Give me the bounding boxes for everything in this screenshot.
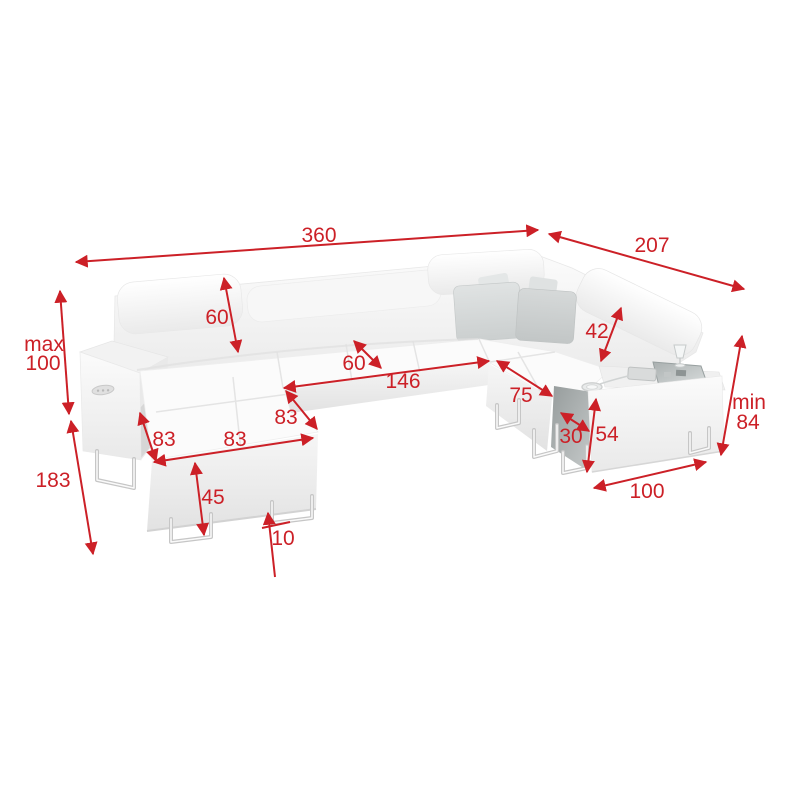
- pillow-right: [515, 288, 576, 344]
- dim-total-depth-label: 207: [634, 234, 669, 257]
- dim-base-front-height-label: 45: [201, 486, 224, 509]
- dim-headrest-height-label: 42: [585, 320, 608, 343]
- sofa-dimensions-diagram: 360 207 max 100 183 60 60 146: [0, 0, 800, 800]
- dim-height-min: min 84: [721, 336, 766, 455]
- dim-right-module-width-label: 100: [629, 480, 664, 503]
- dim-seat-depth-label: 60: [342, 352, 365, 375]
- dim-height-min-value: 84: [736, 411, 760, 434]
- sofa-illustration: [80, 248, 725, 542]
- dim-corner-seat-width-label: 75: [509, 384, 532, 407]
- dim-height-max-value: 100: [25, 352, 60, 375]
- dim-leg-height-label: 10: [271, 527, 294, 550]
- dim-chaise-left-width-label: 83: [152, 428, 175, 451]
- dim-chaise-side-depth-label: 83: [274, 406, 297, 429]
- dim-armrest-height-label: 54: [595, 423, 619, 446]
- dim-backrest-height-label: 60: [205, 306, 228, 329]
- pillow-front: [453, 282, 523, 342]
- dim-height-max: max 100: [24, 291, 69, 414]
- diagram-canvas: 360 207 max 100 183 60 60 146: [0, 0, 800, 800]
- dim-chaise-front-width-label: 83: [223, 428, 246, 451]
- dim-seat-front-width-label: 146: [385, 370, 420, 393]
- dim-armrest-top-width-label: 30: [559, 425, 582, 448]
- dim-chaise-total-depth-label: 183: [35, 469, 70, 492]
- dim-total-width-label: 360: [301, 224, 336, 247]
